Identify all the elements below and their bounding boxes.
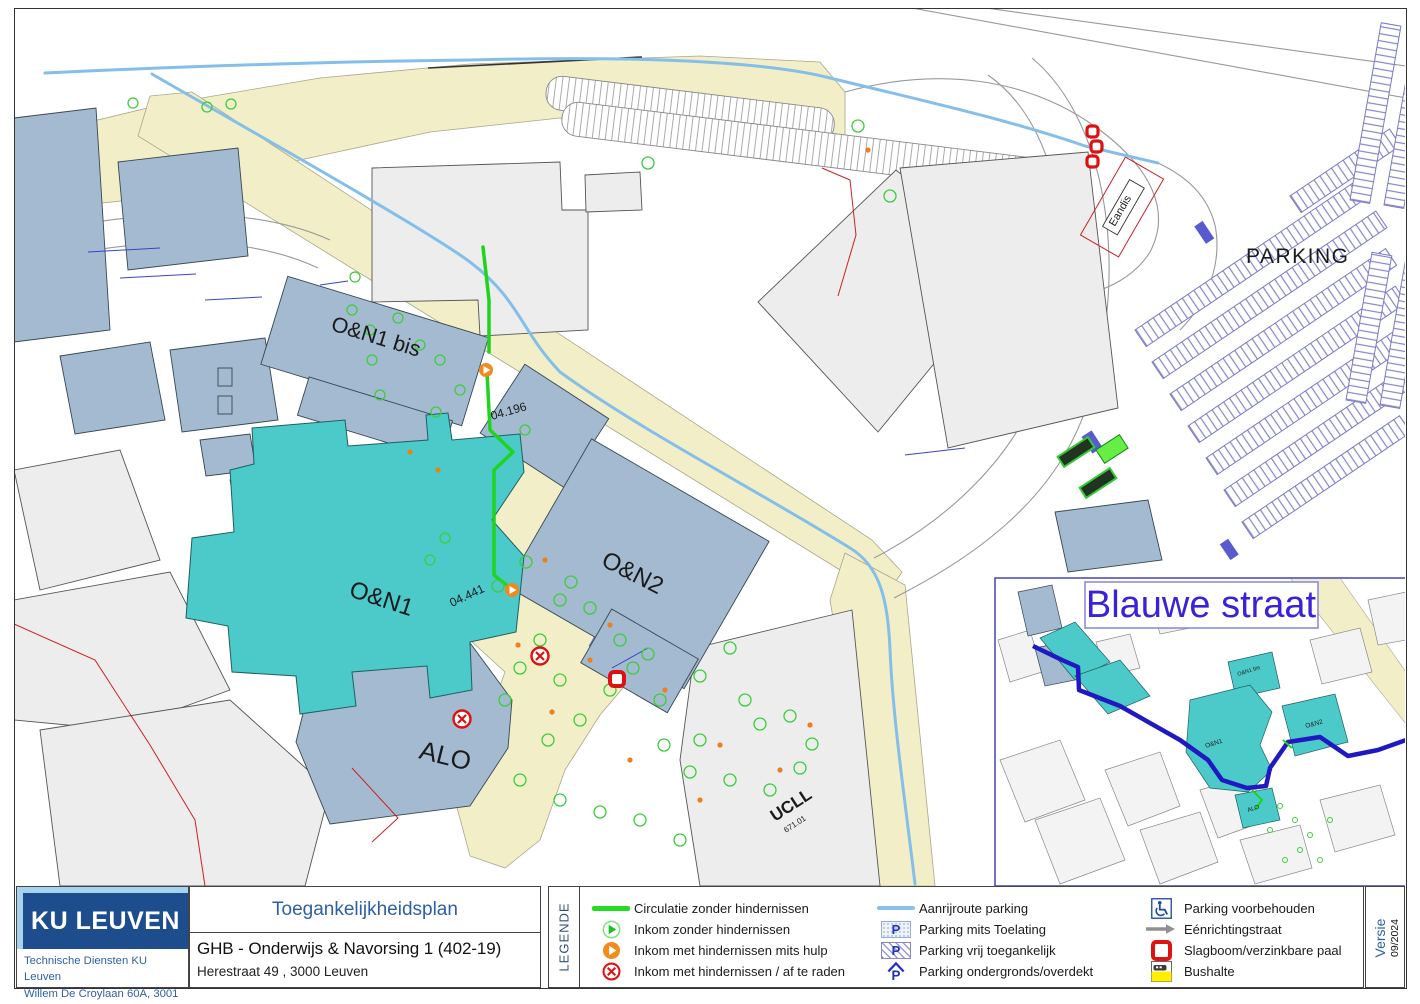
bus-stop-icon (1138, 961, 1184, 982)
legend-label: Inkom met hindernissen mits hulp (634, 943, 828, 958)
one-way-arrow-icon (1138, 923, 1184, 935)
legend: LEGENDE Circulatie zonder hindernissen I… (548, 886, 1364, 988)
plan-title: GHB - Onderwijs & Navorsing 1 (402-19) (190, 933, 540, 959)
version-block: Versie 09/2024 (1365, 886, 1405, 988)
legend-item-parking-toelating: P Parking mits Toelating (873, 919, 1046, 939)
legend-label: Parking voorbehouden (1184, 901, 1315, 916)
entrance-avoid-icon (588, 962, 634, 981)
legend-label: Inkom met hindernissen / af te raden (634, 964, 845, 979)
legend-item-inkom-hulp: Inkom met hindernissen mits hulp (588, 940, 828, 960)
logo-dept-line: Technische Diensten KU Leuven (24, 953, 186, 986)
legend-item-parking-voorbehouden: Parking voorbehouden (1138, 898, 1315, 918)
legend-label: Parking ondergronds/overdekt (919, 964, 1093, 979)
version-value: 09/2024 (1389, 919, 1401, 957)
legend-label: Eénrichtingstraat (1184, 922, 1282, 937)
version-label: Versie (1372, 919, 1388, 958)
legend-item-parking-ondergronds: P Parking ondergronds/overdekt (873, 961, 1093, 981)
legend-label: Circulatie zonder hindernissen (634, 901, 809, 916)
legend-heading: LEGENDE (557, 902, 572, 971)
legend-heading-column: LEGENDE (549, 887, 580, 987)
legend-item-eenrichting: Eénrichtingstraat (1138, 919, 1282, 939)
plan-type-title: Toegankelijkheidsplan (190, 887, 540, 933)
title-block: Toegankelijkheidsplan GHB - Onderwijs & … (189, 886, 541, 988)
legend-label: Bushalte (1184, 964, 1235, 979)
legend-item-parking-vrij: P Parking vrij toegankelijk (873, 940, 1056, 960)
green-line-icon (588, 906, 634, 911)
page-border (14, 8, 1407, 989)
plan-address: Herestraat 49 , 3000 Leuven (190, 959, 540, 979)
legend-label: Slagboom/verzinkbare paal (1184, 943, 1342, 958)
legend-item-aanrijroute: Aanrijroute parking (873, 898, 1028, 918)
blue-line-icon (873, 906, 919, 910)
parking-permit-icon: P (873, 921, 919, 938)
kuleuven-logo-block: KU LEUVEN Technische Diensten KU Leuven … (16, 886, 189, 988)
svg-text:P: P (892, 968, 901, 982)
wheelchair-icon (1138, 898, 1184, 919)
kuleuven-wordmark: KU LEUVEN (23, 893, 188, 949)
legend-label: Parking vrij toegankelijk (919, 943, 1056, 958)
entrance-help-icon (588, 941, 634, 960)
legend-label: Parking mits Toelating (919, 922, 1046, 937)
logo-address-line: Willem De Croylaan 60A, 3001 Heverlee (24, 986, 186, 1004)
legend-label: Inkom zonder hindernissen (634, 922, 790, 937)
legend-item-inkom-ok: Inkom zonder hindernissen (588, 919, 790, 939)
legend-label: Aanrijroute parking (919, 901, 1028, 916)
parking-underground-icon: P (873, 961, 919, 982)
toegankelijkheidsplan-page: O&N1 bis 04.196 O&N1 04.441 O&N2 ALO UCL… (0, 0, 1420, 1004)
parking-free-icon: P (873, 942, 919, 959)
legend-item-inkom-afraden: Inkom met hindernissen / af te raden (588, 961, 845, 981)
legend-item-slagboom: Slagboom/verzinkbare paal (1138, 940, 1342, 960)
entrance-ok-icon (588, 920, 634, 939)
legend-item-circulatie: Circulatie zonder hindernissen (588, 898, 809, 918)
legend-item-bushalte: Bushalte (1138, 961, 1235, 981)
barrier-icon (1138, 940, 1184, 961)
